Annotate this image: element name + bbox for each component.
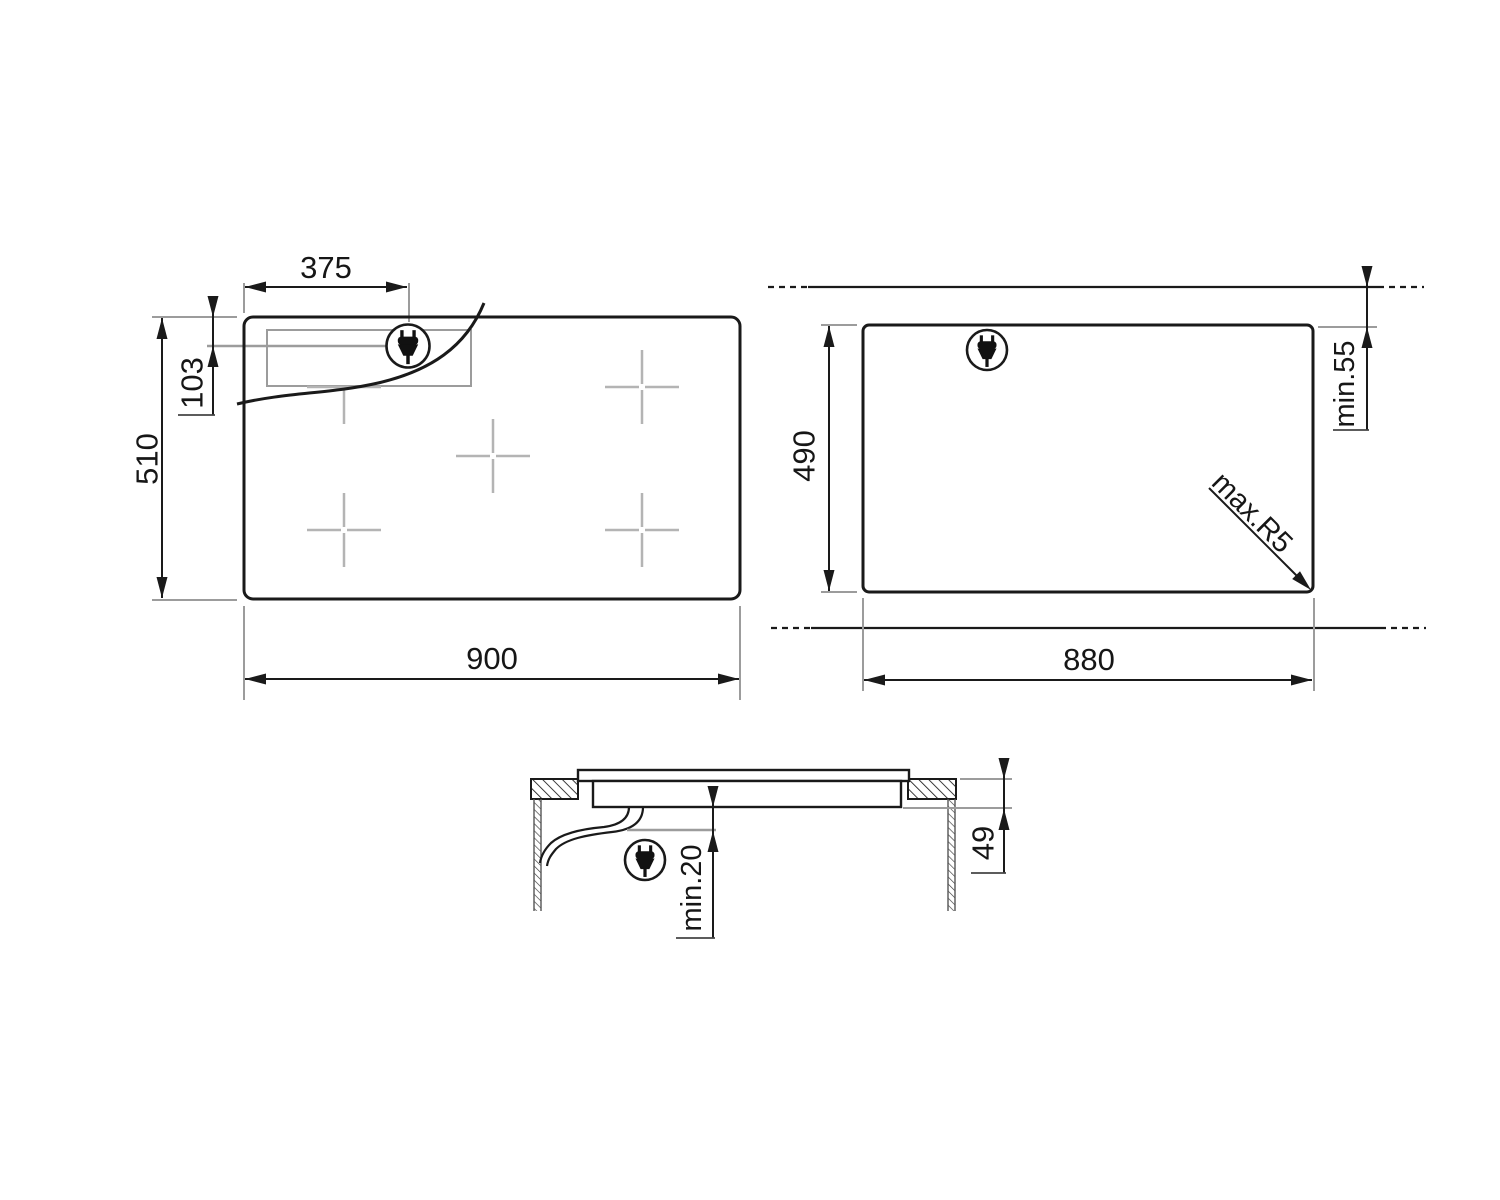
dim-880-label: 880 [1063,642,1115,677]
dim-103-label: 103 [175,357,210,409]
hob-glass-profile [578,770,909,781]
dim-49-label: 49 [966,826,1001,860]
dim-900-label: 900 [466,641,518,676]
dim-min55-label: min.55 [1329,340,1361,427]
dim-min20-label: min.20 [676,844,708,931]
plug-position-marker [625,840,665,880]
plug-position-marker [387,325,430,368]
worktop-section-right [908,779,956,799]
worktop-section-left [531,779,578,799]
hob-installation-drawing: 375 103 510 900 [0,0,1500,1200]
installation-diagram-canvas: 375 103 510 900 [0,0,1500,1200]
dim-375-label: 375 [300,250,352,285]
plug-position-marker [967,330,1007,370]
dim-510-label: 510 [130,433,165,485]
hob-body-profile [593,781,901,807]
dim-490-label: 490 [787,430,822,482]
